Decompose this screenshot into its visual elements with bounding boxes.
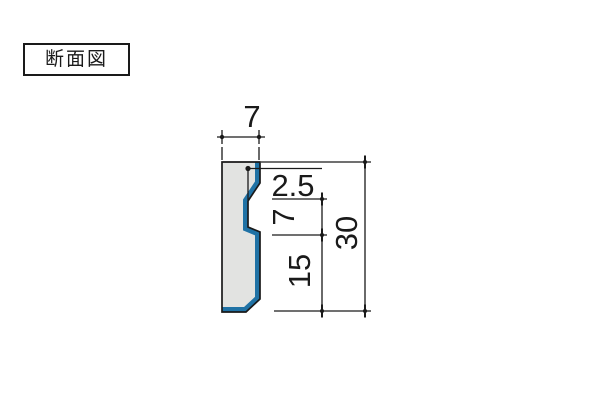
dim-dot bbox=[363, 160, 367, 164]
dim-dot bbox=[257, 135, 261, 139]
profile-diagram: 7 2.5 bbox=[0, 0, 600, 400]
dim-dot bbox=[220, 135, 224, 139]
dim-top-width-value: 7 bbox=[243, 99, 260, 134]
leader-dot bbox=[245, 166, 250, 171]
dim-total-height-value: 30 bbox=[329, 216, 364, 250]
cross-section-figure: 断面図 7 bbox=[0, 0, 600, 400]
dim-dot bbox=[320, 197, 324, 201]
dim-dot bbox=[320, 309, 324, 313]
dim-lower-segment-value: 15 bbox=[282, 254, 317, 288]
dim-notch-depth-value: 2.5 bbox=[271, 168, 314, 203]
dim-top-width bbox=[217, 130, 265, 160]
dim-mid-segment-value: 7 bbox=[266, 208, 301, 225]
dim-dot bbox=[363, 309, 367, 313]
dim-dot bbox=[320, 233, 324, 237]
